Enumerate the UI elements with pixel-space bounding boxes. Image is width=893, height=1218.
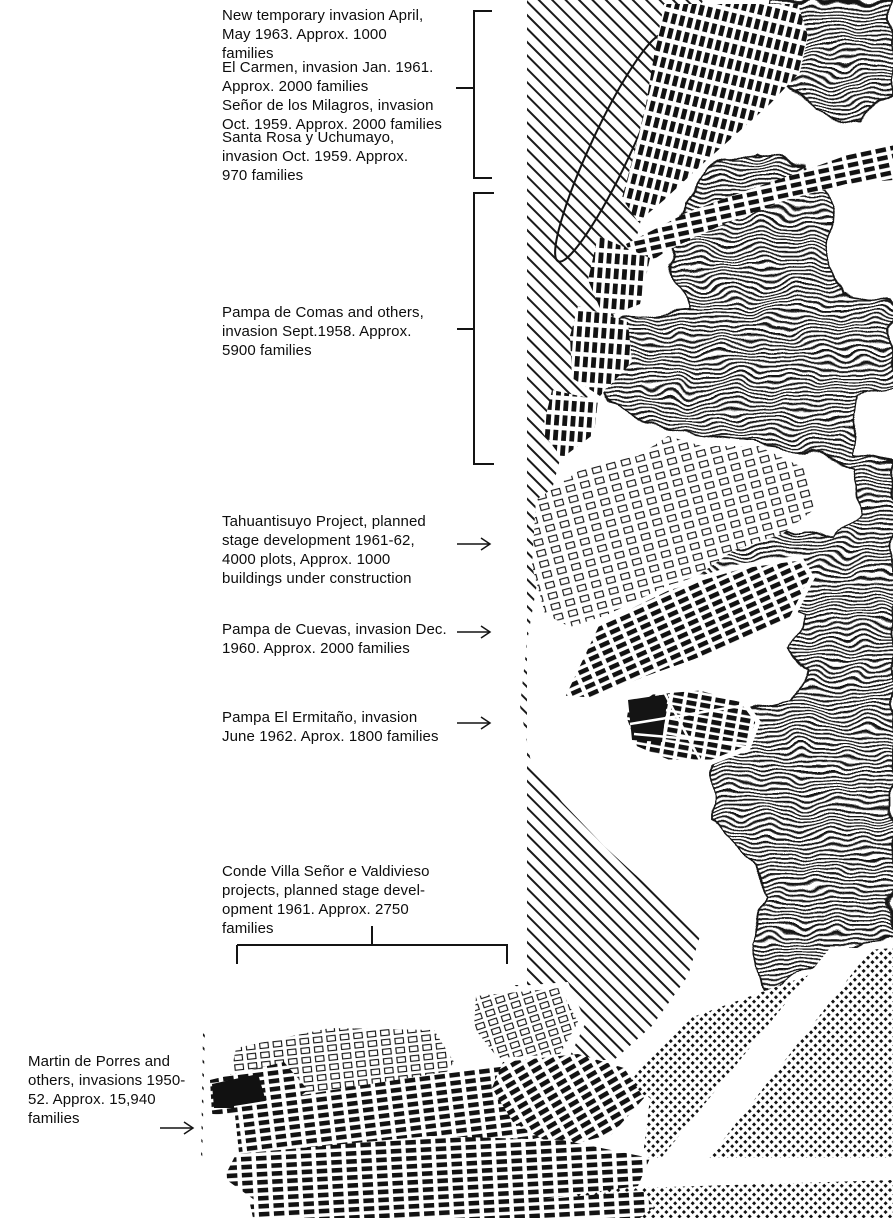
ermitano-settlement bbox=[622, 688, 758, 762]
label-santa-rosa-y-uchumayo: Santa Rosa y Uchumayo, invasion Oct. 195… bbox=[222, 128, 408, 185]
label-line: Conde Villa Señor e Valdivieso bbox=[222, 862, 430, 881]
label-line: invasion Sept.1958. Approx. bbox=[222, 322, 424, 341]
map-figure bbox=[0, 0, 893, 1218]
label-line: Pampa de Comas and others, bbox=[222, 303, 424, 322]
label-line: Pampa de Cuevas, invasion Dec. bbox=[222, 620, 447, 639]
label-tahuantisuyo: Tahuantisuyo Project, planned stage deve… bbox=[222, 512, 426, 588]
label-line: buildings under construction bbox=[222, 569, 426, 588]
scanned-map-page: New temporary invasion April, May 1963. … bbox=[0, 0, 893, 1218]
label-new-temporary: New temporary invasion April, May 1963. … bbox=[222, 6, 423, 63]
label-line: 52. Approx. 15,940 bbox=[28, 1090, 185, 1109]
label-pampa-el-ermitano: Pampa El Ermitaño, invasion June 1962. A… bbox=[222, 708, 439, 746]
label-line: New temporary invasion April, bbox=[222, 6, 423, 25]
label-line: invasion Oct. 1959. Approx. bbox=[222, 147, 408, 166]
conde-villa-blocks-2 bbox=[474, 988, 578, 1058]
label-line: 4000 plots, Approx. 1000 bbox=[222, 550, 426, 569]
label-line: Martin de Porres and bbox=[28, 1052, 185, 1071]
label-line: Pampa El Ermitaño, invasion bbox=[222, 708, 439, 727]
label-line: Approx. 2000 families bbox=[222, 77, 433, 96]
label-line: May 1963. Approx. 1000 bbox=[222, 25, 423, 44]
label-martin-de-porres: Martin de Porres and others, invasions 1… bbox=[28, 1052, 185, 1128]
label-line: El Carmen, invasion Jan. 1961. bbox=[222, 58, 433, 77]
label-line: opment 1961. Approx. 2750 bbox=[222, 900, 430, 919]
label-conde-villa-senor: Conde Villa Señor e Valdivieso projects,… bbox=[222, 862, 430, 938]
label-line: Señor de los Milagros, invasion bbox=[222, 96, 442, 115]
label-line: 1960. Approx. 2000 families bbox=[222, 639, 447, 658]
label-line: 5900 families bbox=[222, 341, 424, 360]
label-line: families bbox=[28, 1109, 185, 1128]
label-line: families bbox=[222, 919, 430, 938]
label-line: Tahuantisuyo Project, planned bbox=[222, 512, 426, 531]
label-pampa-de-cuevas: Pampa de Cuevas, invasion Dec. 1960. App… bbox=[222, 620, 447, 658]
label-line: others, invasions 1950- bbox=[28, 1071, 185, 1090]
label-el-carmen: El Carmen, invasion Jan. 1961. Approx. 2… bbox=[222, 58, 433, 96]
label-line: June 1962. Aprox. 1800 families bbox=[222, 727, 439, 746]
label-pampa-de-comas: Pampa de Comas and others, invasion Sept… bbox=[222, 303, 424, 360]
label-line: 970 families bbox=[222, 166, 408, 185]
label-line: projects, planned stage devel- bbox=[222, 881, 430, 900]
label-line: Santa Rosa y Uchumayo, bbox=[222, 128, 408, 147]
label-line: stage development 1961-62, bbox=[222, 531, 426, 550]
